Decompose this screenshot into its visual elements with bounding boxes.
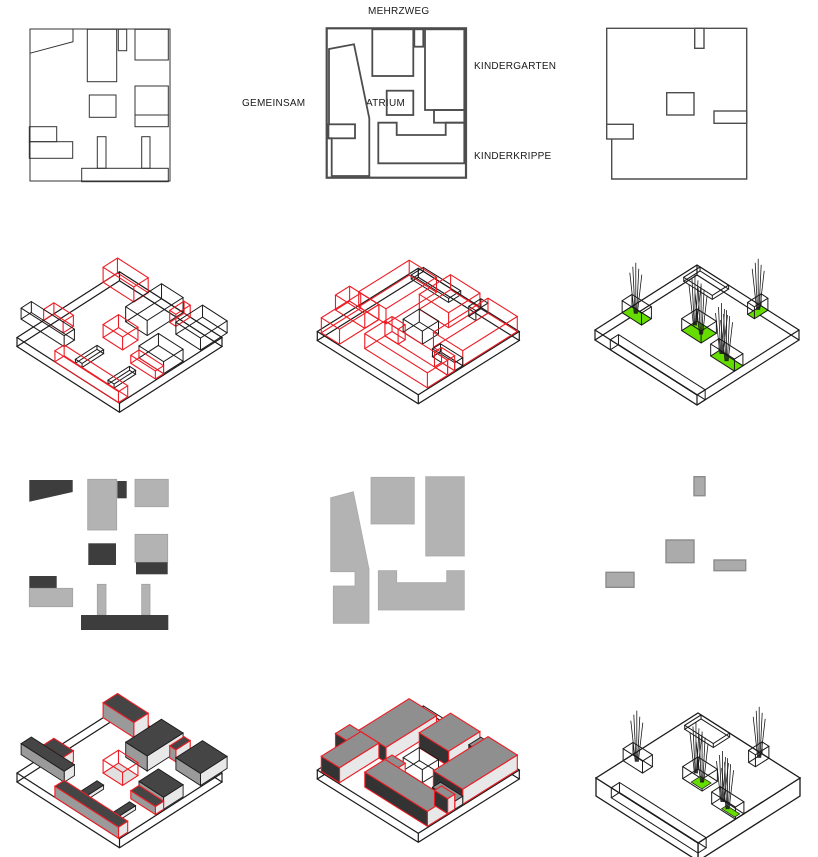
floor-plan-left — [29, 29, 170, 182]
diagram-canvas: MEHRZWEG KINDERGARTEN GEMEINSAM ATRIUM K… — [0, 0, 818, 857]
floor-plan-right — [607, 28, 747, 179]
axon-wireframe-left — [17, 258, 227, 412]
axon-solid-right-roof — [596, 707, 800, 857]
axon-solid-left — [17, 694, 227, 848]
axon-wireframe-center — [317, 260, 519, 404]
floor-plan-center-labeled — [327, 28, 466, 177]
zone-diagram-left — [29, 479, 168, 630]
zone-diagram-right — [606, 477, 746, 588]
diagram-artwork — [0, 0, 818, 857]
axon-solid-center — [317, 699, 519, 843]
zone-diagram-center — [331, 477, 465, 624]
axon-wireframe-right-green-roof — [595, 259, 799, 405]
